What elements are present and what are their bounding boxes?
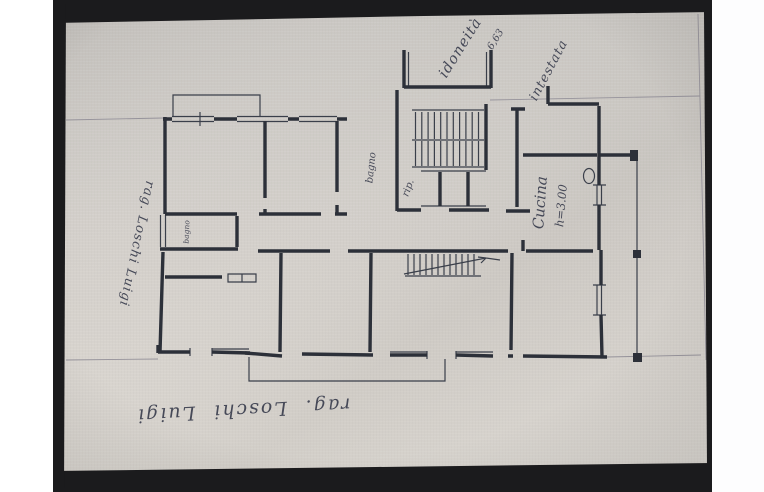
- screenshot-root: rag. Loschi Luigi rag. Loschi Luigi inte…: [0, 0, 764, 492]
- floor-plan-photo: rag. Loschi Luigi rag. Loschi Luigi inte…: [0, 0, 764, 492]
- left-margin: [0, 0, 53, 492]
- right-margin: [712, 0, 764, 492]
- photo-left-edge: [53, 0, 66, 492]
- photo-vignette: [53, 0, 712, 492]
